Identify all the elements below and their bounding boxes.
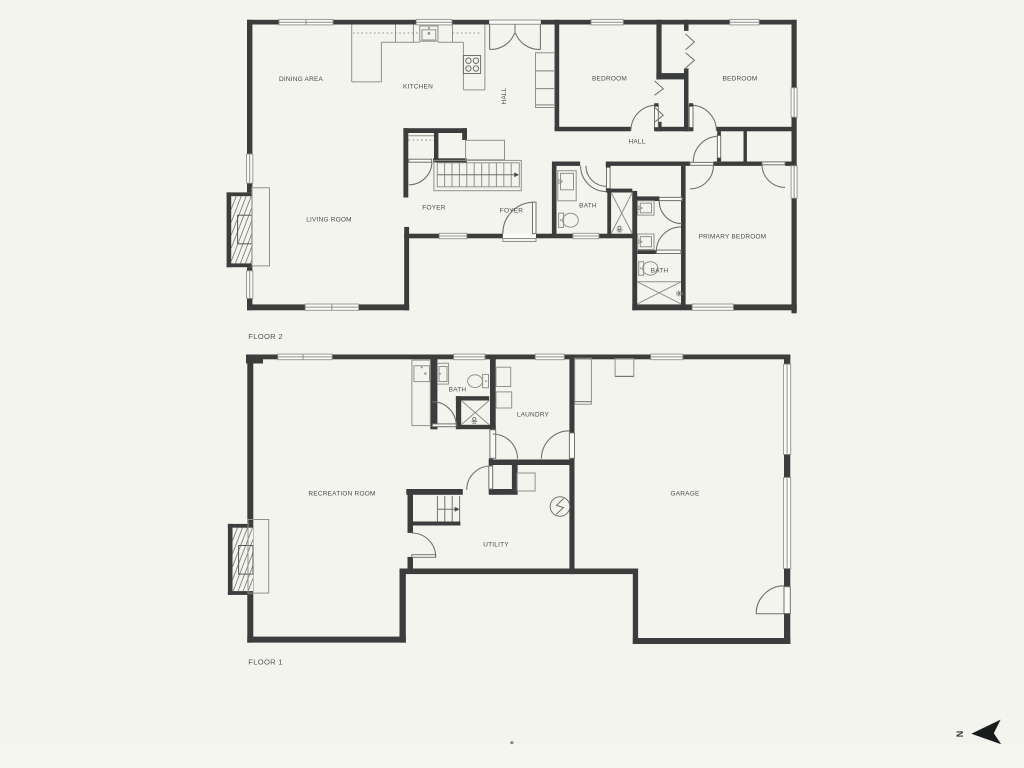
svg-text:N: N: [955, 731, 965, 738]
svg-text:GARAGE: GARAGE: [670, 491, 699, 498]
svg-text:HALL: HALL: [501, 87, 508, 104]
svg-text:BATH: BATH: [651, 268, 669, 275]
svg-text:DINING AREA: DINING AREA: [279, 76, 324, 83]
svg-text:FOYER: FOYER: [422, 205, 445, 212]
svg-text:RECREATION ROOM: RECREATION ROOM: [308, 491, 375, 498]
svg-text:FLOOR 1: FLOOR 1: [248, 658, 283, 667]
svg-text:FLOOR 2: FLOOR 2: [248, 332, 283, 341]
svg-text:KITCHEN: KITCHEN: [403, 84, 433, 91]
svg-text:BEDROOM: BEDROOM: [723, 76, 758, 83]
svg-text:FOYER: FOYER: [500, 208, 523, 215]
svg-text:PRIMARY BEDROOM: PRIMARY BEDROOM: [699, 234, 767, 241]
svg-text:BATH: BATH: [449, 387, 467, 394]
svg-text:LAUNDRY: LAUNDRY: [517, 412, 550, 419]
svg-text:BEDROOM: BEDROOM: [592, 76, 627, 83]
svg-text:LIVING ROOM: LIVING ROOM: [306, 217, 352, 224]
svg-text:UTILITY: UTILITY: [483, 542, 509, 549]
svg-text:BATH: BATH: [579, 203, 597, 210]
svg-text:HALL: HALL: [628, 139, 645, 146]
